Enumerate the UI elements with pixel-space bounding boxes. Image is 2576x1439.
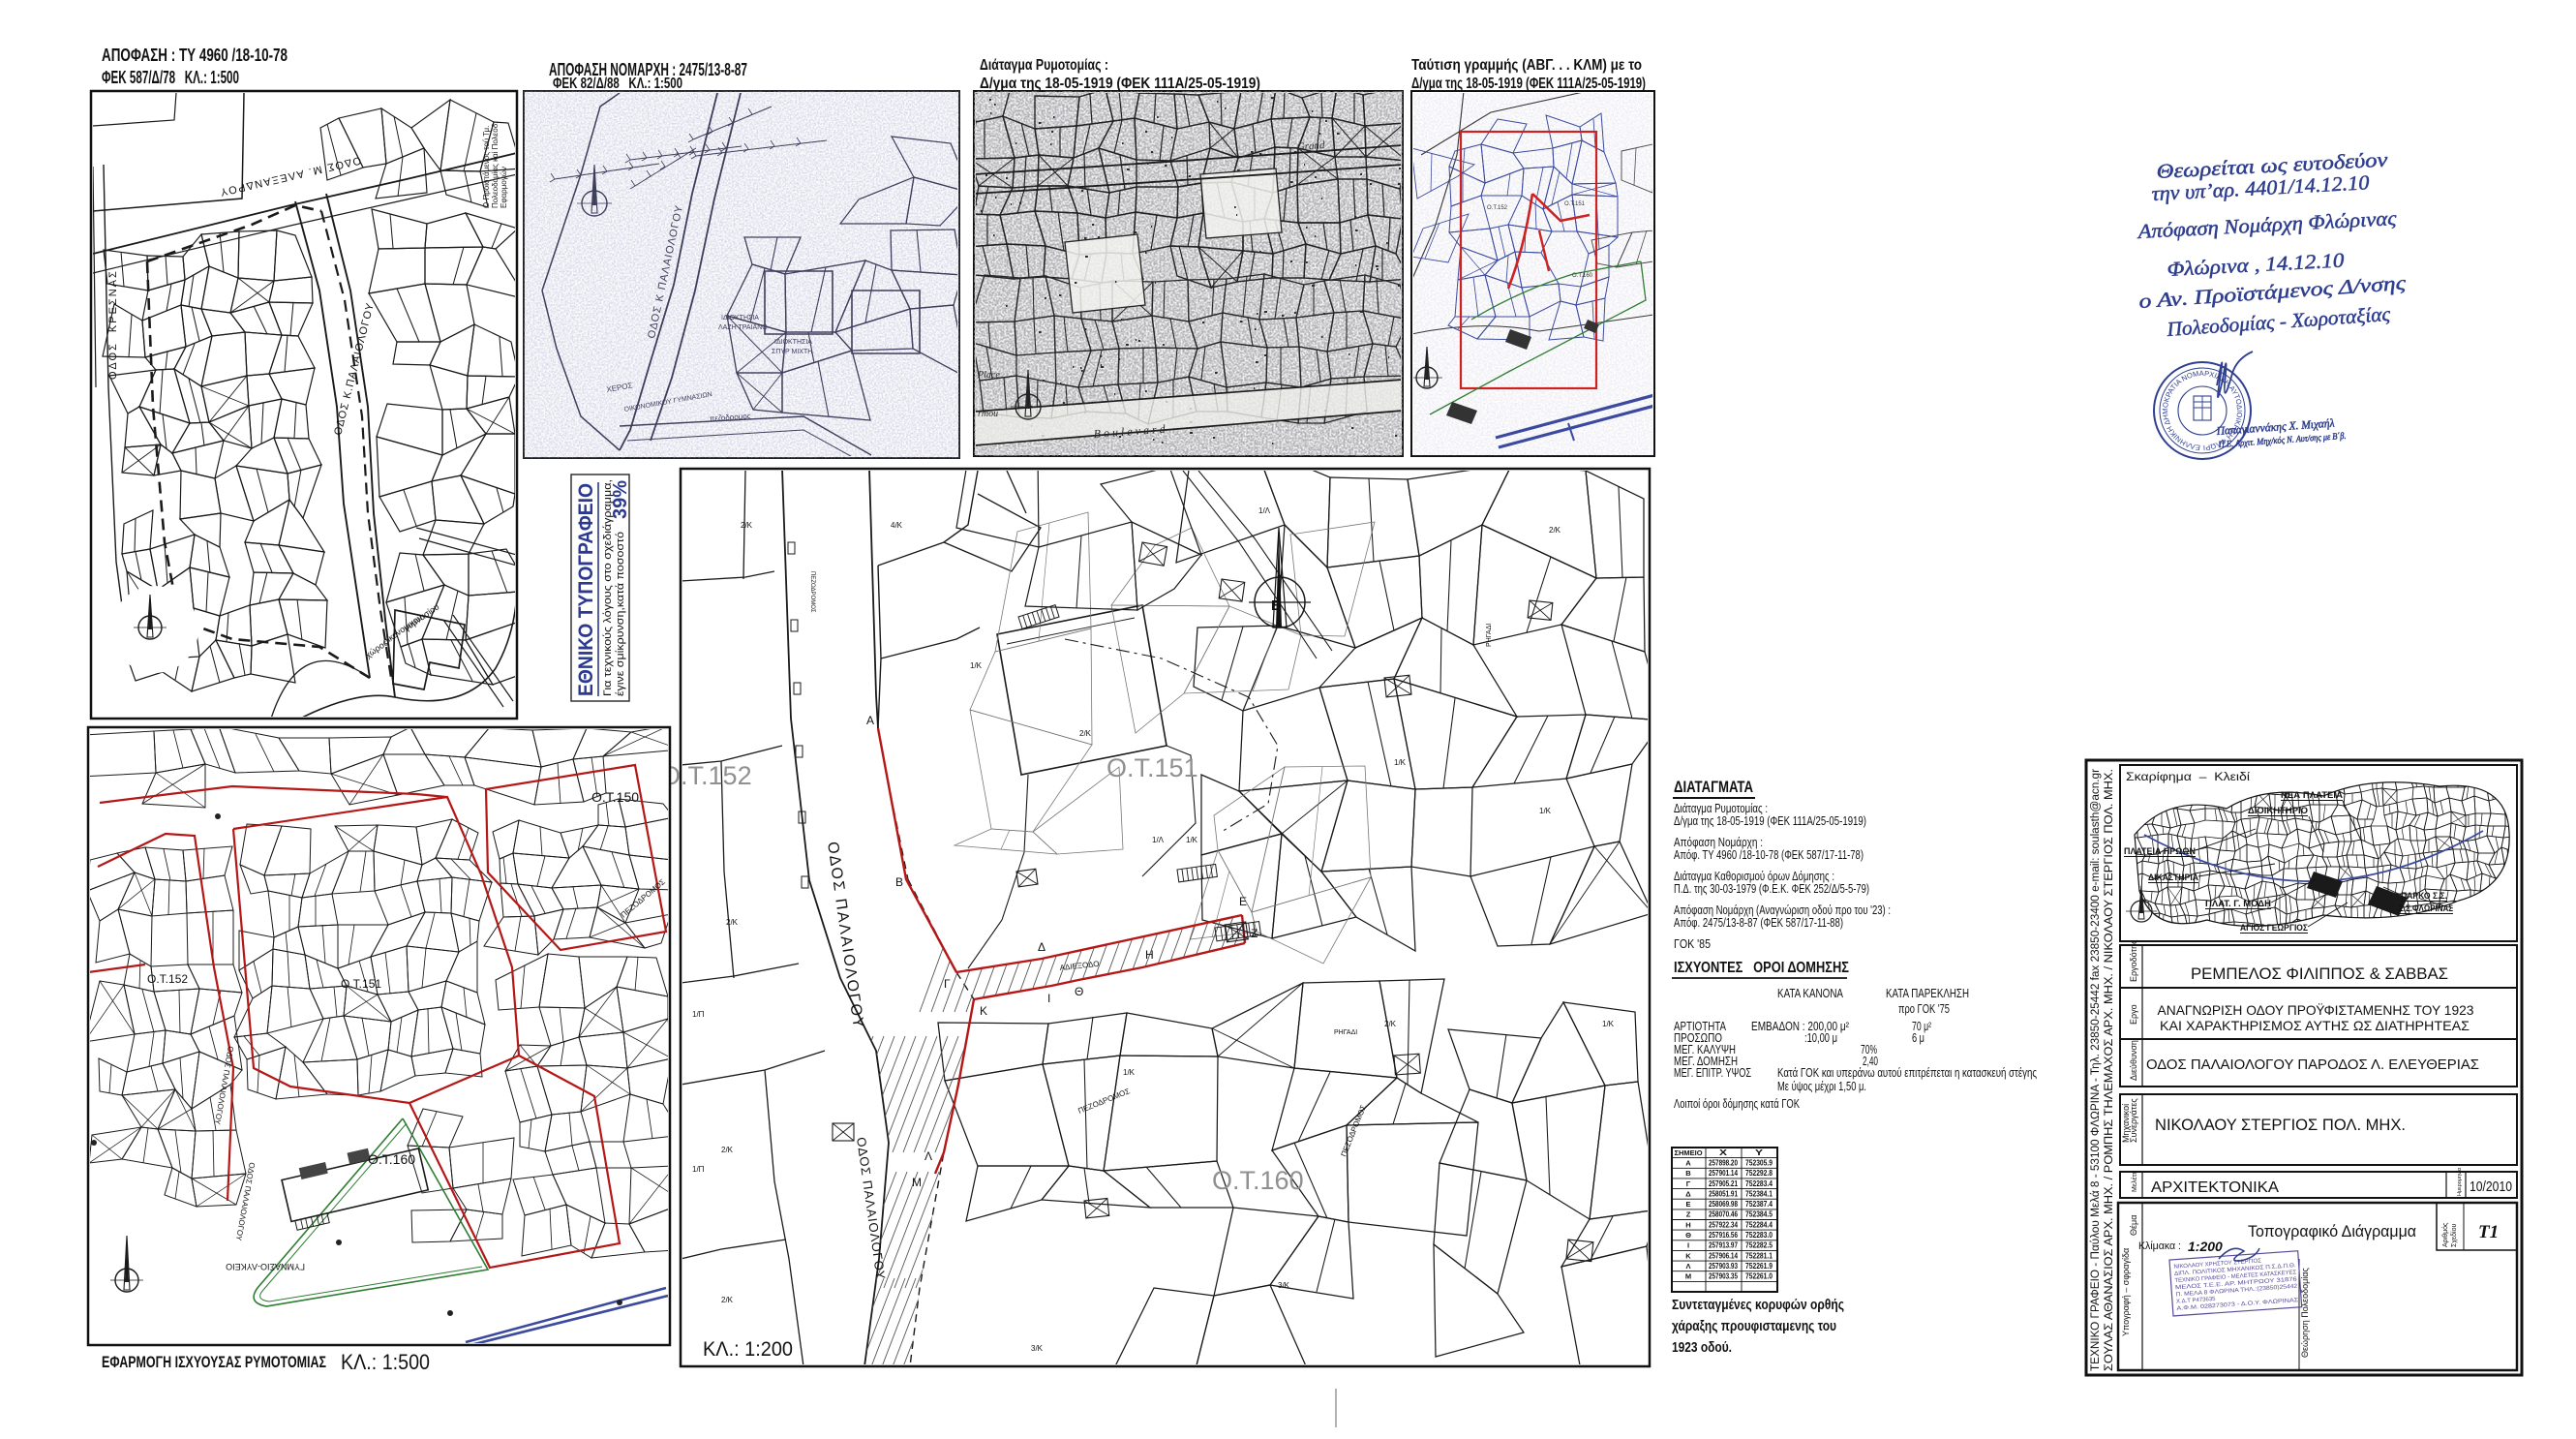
svg-text:752283.4: 752283.4: [1745, 1179, 1773, 1188]
svg-text:1/Κ: 1/Κ: [1186, 836, 1198, 844]
svg-text:Κ: Κ: [980, 1004, 987, 1018]
svg-text:ΝΕΑ ΠΛΑΤΕΙΑ: ΝΕΑ ΠΛΑΤΕΙΑ: [2281, 790, 2344, 800]
svg-text:Γ: Γ: [944, 977, 951, 991]
svg-text:Συντεταγμένες κορυφών ορθής: Συντεταγμένες κορυφών ορθής: [1672, 1297, 1844, 1313]
svg-text:Ο.Τ.151: Ο.Τ.151: [341, 977, 381, 991]
svg-text:ΣΗΜΕΙΟ: ΣΗΜΕΙΟ: [1674, 1148, 1702, 1157]
svg-text:ΕΦΑΡΜΟΓΗ ΙΣΧΥΟΥΣΑΣ ΡΥΜΟΤΟΜΙΑΣ: ΕΦΑΡΜΟΓΗ ΙΣΧΥΟΥΣΑΣ ΡΥΜΟΤΟΜΙΑΣ: [102, 1353, 326, 1371]
svg-text:Ε: Ε: [1685, 1200, 1690, 1209]
svg-text:Place: Place: [977, 370, 1000, 381]
svg-text:752261.0: 752261.0: [1745, 1272, 1773, 1281]
svg-text:ΚΑΤΑ ΚΑΝΟΝΑ: ΚΑΤΑ ΚΑΝΟΝΑ: [1777, 987, 1844, 1000]
svg-text:Δ/γμα της 18-05-1919 (ΦΕΚ 111Α: Δ/γμα της 18-05-1919 (ΦΕΚ 111Α/25-05-191…: [980, 76, 1260, 92]
svg-text:Με ύψος μέχρι 1,50 μ.: Με ύψος μέχρι 1,50 μ.: [1777, 1080, 1866, 1093]
svg-text:752305.9: 752305.9: [1745, 1158, 1773, 1167]
svg-text:ΦΕΚ 587/Δ/78 ΚΛ.: 1:500: ΦΕΚ 587/Δ/78 ΚΛ.: 1:500: [102, 68, 239, 87]
svg-text:Η: Η: [1145, 948, 1154, 962]
svg-text:Μελέτη: Μελέτη: [2131, 1171, 2138, 1192]
svg-text:ΣΠΥΡ ΜΙΧΤΗ: ΣΠΥΡ ΜΙΧΤΗ: [772, 349, 812, 355]
svg-text:Πολεοδομίας καί Πολεοδ.: Πολεοδομίας καί Πολεοδ.: [491, 122, 500, 208]
svg-text:Β: Β: [1271, 597, 1282, 614]
svg-text:257906.14: 257906.14: [1709, 1251, 1738, 1260]
svg-text:ΦΕΚ 82/Δ/88 ΚΛ.: 1:500: ΦΕΚ 82/Δ/88 ΚΛ.: 1:500: [553, 76, 682, 92]
svg-text:Υπογραφή – σφραγίδα: Υπογραφή – σφραγίδα: [2121, 1248, 2131, 1336]
svg-text:ΔΙΚΑΣΤΗΡΙΑ: ΔΙΚΑΣΤΗΡΙΑ: [2148, 873, 2198, 882]
svg-text:752281.1: 752281.1: [1745, 1251, 1773, 1260]
svg-text:ΑΠΟΦΑΣΗ : ΤΥ 4960 /18-10-78: ΑΠΟΦΑΣΗ : ΤΥ 4960 /18-10-78: [102, 46, 288, 65]
svg-text:3/Κ: 3/Κ: [1031, 1344, 1044, 1353]
svg-text:ΑΡΧΙΤΕΚΤΟΝΙΚΑ: ΑΡΧΙΤΕΚΤΟΝΙΚΑ: [2151, 1179, 2279, 1196]
svg-text:752261.9: 752261.9: [1745, 1262, 1773, 1271]
svg-text:1/Κ: 1/Κ: [1539, 807, 1552, 815]
svg-text:ΠΛΑΤ. Γ. ΜΟΔΗ: ΠΛΑΤ. Γ. ΜΟΔΗ: [2205, 899, 2271, 908]
svg-text:257901.14: 257901.14: [1709, 1169, 1738, 1178]
svg-text:Λοιποί όροι δόμησης κατά ΓΟΚ: Λοιποί όροι δόμησης κατά ΓΟΚ: [1674, 1097, 1800, 1111]
svg-text:ΑΓΙΟΣ ΓΕΩΡΓΙΟΣ: ΑΓΙΟΣ ΓΕΩΡΓΙΟΣ: [2240, 923, 2309, 933]
svg-text:ΔΙΟΙΚΗΤΗΡΙΟ: ΔΙΟΙΚΗΤΗΡΙΟ: [2248, 806, 2308, 815]
svg-text::10,00 μ: :10,00 μ: [1804, 1031, 1837, 1045]
svg-text:ΡΗΓΑΔΙ: ΡΗΓΑΔΙ: [1486, 624, 1493, 647]
svg-text:752284.4: 752284.4: [1745, 1220, 1773, 1229]
svg-text:Ο.Τ.160: Ο.Τ.160: [368, 1151, 415, 1167]
svg-text:Διάταγμα Καθορισμού όρων Δόμησ: Διάταγμα Καθορισμού όρων Δόμησης :: [1674, 870, 1834, 883]
svg-text:257903.35: 257903.35: [1709, 1272, 1738, 1281]
svg-text:1/Π: 1/Π: [692, 1010, 705, 1019]
svg-text:Δ: Δ: [1685, 1189, 1691, 1198]
svg-text:Γ: Γ: [1686, 1179, 1691, 1188]
svg-text:Διάταγμα Ρυμοτομίας :: Διάταγμα Ρυμοτομίας :: [980, 57, 1108, 74]
svg-text:1/Κ: 1/Κ: [970, 661, 983, 670]
svg-text:752283.0: 752283.0: [1745, 1231, 1773, 1240]
svg-text:Τ1: Τ1: [2478, 1222, 2499, 1242]
svg-text:Δ: Δ: [1038, 940, 1046, 954]
svg-text:ΠΑΡΚΟ Σ.Σ.: ΠΑΡΚΟ Σ.Σ.: [2401, 891, 2447, 901]
svg-text:Π.Δ. της 30-03-1979 (Φ.Ε.Κ. ΦΕ: Π.Δ. της 30-03-1979 (Φ.Ε.Κ. ΦΕΚ 252/Δ/5-…: [1674, 882, 1869, 896]
svg-text:Ο.Τ.152: Ο.Τ.152: [147, 972, 188, 986]
svg-text:Ημερομηνία: Ημερομηνία: [2457, 1167, 2463, 1196]
svg-text:Εφαρμογών: Εφαρμογών: [500, 167, 508, 208]
svg-text:258051.91: 258051.91: [1709, 1189, 1738, 1198]
svg-text:Κλίμακα :: Κλίμακα :: [2138, 1240, 2181, 1252]
svg-text:έγινε σμίκρυνση,κατά ποσοστό: έγινε σμίκρυνση,κατά ποσοστό: [615, 532, 626, 696]
svg-text:Y: Y: [1755, 1148, 1764, 1157]
svg-text:ΔΙΑΤΑΓΜΑΤΑ: ΔΙΑΤΑΓΜΑΤΑ: [1674, 778, 1753, 796]
svg-text:257905.21: 257905.21: [1709, 1179, 1738, 1188]
svg-text:1923 οδού.: 1923 οδού.: [1672, 1339, 1732, 1356]
svg-text:ΙΔΙΟΚΤΗΣΙΑ: ΙΔΙΟΚΤΗΣΙΑ: [774, 339, 812, 346]
svg-text:ΝΙΚΟΛΑΟΥ ΣΤΕΡΓΙΟΣ ΠΟΛ. ΜΗΧ.: ΝΙΚΟΛΑΟΥ ΣΤΕΡΓΙΟΣ ΠΟΛ. ΜΗΧ.: [2155, 1116, 2406, 1134]
svg-text:Λ: Λ: [1685, 1262, 1690, 1271]
svg-text:6 μ: 6 μ: [1912, 1031, 1924, 1045]
svg-text:Σχεδίου: Σχεδίου: [2450, 1224, 2458, 1247]
svg-text:258069.98: 258069.98: [1709, 1200, 1738, 1209]
svg-text:Ταύτιση γραμμής (ΑΒΓ. . . ΚΛΜ): Ταύτιση γραμμής (ΑΒΓ. . . ΚΛΜ) με το: [1411, 57, 1642, 74]
svg-text:Σ.Σ.ΦΛΩΡΙΝΑΣ: Σ.Σ.ΦΛΩΡΙΝΑΣ: [2399, 903, 2454, 913]
svg-text:ΚΑΙ ΧΑΡΑΚΤΗΡΙΣΜΟΣ ΑΥΤΗΣ ΩΣ ΔΙΑ: ΚΑΙ ΧΑΡΑΚΤΗΡΙΣΜΟΣ ΑΥΤΗΣ ΩΣ ΔΙΑΤΗΡΗΤΕΑΣ: [2160, 1018, 2470, 1033]
svg-text:257922.34: 257922.34: [1709, 1220, 1738, 1229]
svg-text:Απόφαση Νομάρχη (Αναγνώριση οδ: Απόφαση Νομάρχη (Αναγνώριση οδού προ του…: [1674, 903, 1891, 917]
svg-text:Ο.Τ.151: Ο.Τ.151: [1106, 753, 1198, 782]
svg-text:752282.5: 752282.5: [1745, 1241, 1773, 1250]
svg-text:ΓΟΚ '85: ΓΟΚ '85: [1674, 937, 1711, 951]
svg-text:1/Κ: 1/Κ: [1394, 758, 1407, 767]
svg-text:Μ: Μ: [1685, 1272, 1691, 1281]
svg-text:ΚΛ.: 1:200: ΚΛ.: 1:200: [703, 1338, 793, 1361]
svg-text:1/Λ: 1/Λ: [1152, 836, 1165, 844]
svg-text:Β: Β: [895, 875, 903, 889]
svg-text:10/2010: 10/2010: [2470, 1179, 2512, 1195]
svg-text:257898.20: 257898.20: [1709, 1158, 1738, 1167]
svg-text:ΜΕΓ. ΕΠΙΤΡ. ΥΨΟΣ: ΜΕΓ. ΕΠΙΤΡ. ΥΨΟΣ: [1674, 1066, 1751, 1080]
svg-text:Θέμα: Θέμα: [2129, 1215, 2138, 1236]
svg-text:Θ: Θ: [1685, 1231, 1691, 1240]
svg-text:257903.93: 257903.93: [1709, 1262, 1738, 1271]
svg-text:Κ: Κ: [1685, 1251, 1691, 1260]
svg-text:1/Κ: 1/Κ: [1123, 1068, 1136, 1077]
svg-text:Απόφαση Νομάρχη :: Απόφαση Νομάρχη :: [1674, 836, 1763, 849]
svg-text:ΙΔΙΟΚΤΗΣΙΑ: ΙΔΙΟΚΤΗΣΙΑ: [721, 315, 759, 321]
svg-text:ΚΑΤΑ ΠΑΡΕΚΛΗΣΗ: ΚΑΤΑ ΠΑΡΕΚΛΗΣΗ: [1886, 987, 1969, 1000]
svg-text:752384.1: 752384.1: [1745, 1189, 1773, 1198]
svg-text:ΚΛ.: 1:500: ΚΛ.: 1:500: [341, 1350, 430, 1374]
svg-text:ΡΗΓΑΔΙ: ΡΗΓΑΔΙ: [1334, 1029, 1357, 1036]
svg-text:2/Κ: 2/Κ: [726, 918, 739, 927]
svg-text:Εργοδότης: Εργοδότης: [2129, 939, 2138, 982]
svg-text:Λ: Λ: [924, 1149, 932, 1163]
svg-text:Ζ: Ζ: [1251, 927, 1258, 940]
svg-text:Τοπογραφικό Διάγραμμα: Τοπογραφικό Διάγραμμα: [2248, 1222, 2416, 1240]
svg-text:Αριθμός: Αριθμός: [2441, 1222, 2449, 1247]
svg-text:39%: 39%: [610, 480, 631, 519]
svg-text:Ι: Ι: [1047, 992, 1050, 1005]
svg-text:Β: Β: [1685, 1169, 1691, 1178]
svg-text:Απόφ. ΤΥ 4960 /18-10-78 (ΦΕΚ 5: Απόφ. ΤΥ 4960 /18-10-78 (ΦΕΚ 587/17-11-7…: [1674, 848, 1864, 862]
svg-text:Ι: Ι: [1687, 1241, 1689, 1250]
svg-text:Ο.Τ.150: Ο.Τ.150: [591, 789, 639, 805]
svg-text:ΠΕΖΟΔΡΟΜΟΣ: ΠΕΖΟΔΡΟΜΟΣ: [809, 571, 815, 613]
svg-text:ΑΝΑΓΝΩΡΙΣΗ ΟΔΟΥ ΠΡΟΫΦΙΣΤΑΜΕΝΗΣ: ΑΝΑΓΝΩΡΙΣΗ ΟΔΟΥ ΠΡΟΫΦΙΣΤΑΜΕΝΗΣ ΤΟΥ 1923: [2158, 1002, 2474, 1018]
svg-text:Ο.Τ.152: Ο.Τ.152: [1487, 205, 1508, 211]
svg-text:Κατά ΓΟΚ και υπεράνω αυτού ε: Κατά ΓΟΚ και υπεράνω αυτού επιτρέπεται η…: [1777, 1066, 2037, 1080]
svg-text:ΕΘΝΙΚΟ ΤΥΠΟΓΡΑΦΕΙΟ: ΕΘΝΙΚΟ ΤΥΠΟΓΡΑΦΕΙΟ: [575, 483, 597, 696]
svg-text:ΤΕΧΝΙΚΟ ΓΡΑΦΕΙΟ - Παύλου Μελ: ΤΕΧΝΙΚΟ ΓΡΑΦΕΙΟ - Παύλου Μελά 8 - 53100 …: [2090, 769, 2102, 1371]
svg-text:rmou: rmou: [978, 409, 998, 419]
svg-text:Απόφ. 2475/13-8-87 (ΦΕΚ 587/17: Απόφ. 2475/13-8-87 (ΦΕΚ 587/17-11-88): [1674, 916, 1843, 930]
svg-text:Σκαρίφημα – Κλειδί: Σκαρίφημα – Κλειδί: [2126, 770, 2250, 783]
svg-text:Ο.Τ.160: Ο.Τ.160: [1212, 1166, 1304, 1195]
svg-text:Α: Α: [866, 714, 874, 727]
svg-text:Α: Α: [1685, 1158, 1691, 1167]
svg-text:ΡΕΜΠΕΛΟΣ ΦΙΛΙΠΠΟΣ & ΣΑΒΒΑΣ: ΡΕΜΠΕΛΟΣ ΦΙΛΙΠΠΟΣ & ΣΑΒΒΑΣ: [2191, 964, 2448, 983]
svg-text:Μ: Μ: [912, 1176, 922, 1189]
svg-text:ΛΑΖΗ ΤΡΑΙΑΝΟ: ΛΑΖΗ ΤΡΑΙΑΝΟ: [718, 324, 768, 331]
svg-text:ΠΛΑΤΕΙΑ ΗΡΩΩΝ: ΠΛΑΤΕΙΑ ΗΡΩΩΝ: [2124, 846, 2196, 856]
svg-text:ΣΟΥΛΑΣ ΑΘΑΝΑΣΙΟΣ ΑΡΧ. ΜΗΧ. / Ρ: ΣΟΥΛΑΣ ΑΘΑΝΑΣΙΟΣ ΑΡΧ. ΜΗΧ. / ΡΟΜΠΗΣ ΤΗΛΕ…: [2104, 769, 2115, 1371]
svg-text:258070.46: 258070.46: [1709, 1210, 1738, 1219]
svg-text:2/Κ: 2/Κ: [1549, 526, 1561, 535]
svg-text:4/Κ: 4/Κ: [891, 521, 903, 530]
svg-text:Ζ: Ζ: [1686, 1210, 1691, 1219]
svg-text:2/Κ: 2/Κ: [1384, 1020, 1397, 1028]
svg-text:ΟΔΟΣ ΚΡΕΣΝΑΣ: ΟΔΟΣ ΚΡΕΣΝΑΣ: [107, 269, 119, 380]
svg-text:752384.5: 752384.5: [1745, 1210, 1773, 1219]
svg-text:ΓΥΜΝΑΣΙΟ-ΛΥΚΕΙΟ: ΓΥΜΝΑΣΙΟ-ΛΥΚΕΙΟ: [226, 1262, 305, 1271]
svg-text:Ο Προϊστάμενος τού Τμ.: Ο Προϊστάμενος τού Τμ.: [482, 126, 491, 208]
svg-text:752292.8: 752292.8: [1745, 1169, 1773, 1178]
svg-text:Ο.Τ.160: Ο.Τ.160: [1572, 273, 1593, 279]
svg-text:2/Κ: 2/Κ: [721, 1146, 734, 1154]
svg-text:ΟΔΟΣ ΠΑΛΑΙΟΛΟΓΟΥ ΠΑΡΟΔΟΣ Λ. ΕΛ: ΟΔΟΣ ΠΑΛΑΙΟΛΟΓΟΥ ΠΑΡΟΔΟΣ Λ. ΕΛΕΥΘΕΡΙΑΣ: [2146, 1056, 2479, 1073]
svg-text:Ο.Τ.151: Ο.Τ.151: [1564, 201, 1586, 207]
svg-text:Δ/γμα της 18-05-1919 (ΦΕΚ 111: Δ/γμα της 18-05-1919 (ΦΕΚ 111Α/25-05-191…: [1674, 814, 1866, 828]
svg-text:χάραξης προυφισταμενης του: χάραξης προυφισταμενης του: [1672, 1318, 1836, 1334]
svg-text:Θεώρηση Πολεοδομίας: Θεώρηση Πολεοδομίας: [2300, 1268, 2310, 1358]
svg-text:1/Λ: 1/Λ: [1258, 506, 1271, 515]
svg-text:Δ/γμα της 18-05-1919 (ΦΕΚ 111Α: Δ/γμα της 18-05-1919 (ΦΕΚ 111Α/25-05-191…: [1411, 76, 1646, 92]
svg-text:X: X: [1719, 1148, 1728, 1157]
svg-text:2/Κ: 2/Κ: [721, 1296, 734, 1304]
svg-text:752387.4: 752387.4: [1745, 1200, 1773, 1209]
svg-text:Εργο: Εργο: [2129, 1004, 2138, 1025]
svg-text:Διάταγμα Ρυμοτομίας :: Διάταγμα Ρυμοτομίας :: [1674, 802, 1768, 815]
svg-text:προ ΓΟΚ '75: προ ΓΟΚ '75: [1898, 1002, 1950, 1016]
svg-text:1/Κ: 1/Κ: [1602, 1020, 1615, 1028]
svg-text:1:200: 1:200: [2188, 1239, 2223, 1254]
svg-text:1/Π: 1/Π: [692, 1165, 705, 1174]
svg-text:Η: Η: [1685, 1220, 1690, 1229]
svg-text:Θ: Θ: [1075, 985, 1083, 998]
svg-text:2/Κ: 2/Κ: [741, 521, 753, 530]
svg-text:Ε: Ε: [1239, 895, 1247, 908]
svg-text:2/Κ: 2/Κ: [1079, 729, 1092, 738]
svg-text:3/Κ: 3/Κ: [1278, 1281, 1290, 1290]
svg-text:Διεύθυνση: Διεύθυνση: [2129, 1040, 2138, 1081]
svg-text:ΙΣΧΥΟΝΤΕΣ ΟΡΟΙ ΔΟΜΗΣΗΣ: ΙΣΧΥΟΝΤΕΣ ΟΡΟΙ ΔΟΜΗΣΗΣ: [1674, 960, 1849, 976]
svg-text:257916.56: 257916.56: [1709, 1231, 1738, 1240]
svg-text:Ο.Τ.152: Ο.Τ.152: [660, 761, 752, 790]
svg-text:Grand: Grand: [1296, 139, 1325, 153]
svg-text:Μηχανικοί: Μηχανικοί: [2121, 1104, 2131, 1143]
svg-text:257913.97: 257913.97: [1709, 1241, 1738, 1250]
